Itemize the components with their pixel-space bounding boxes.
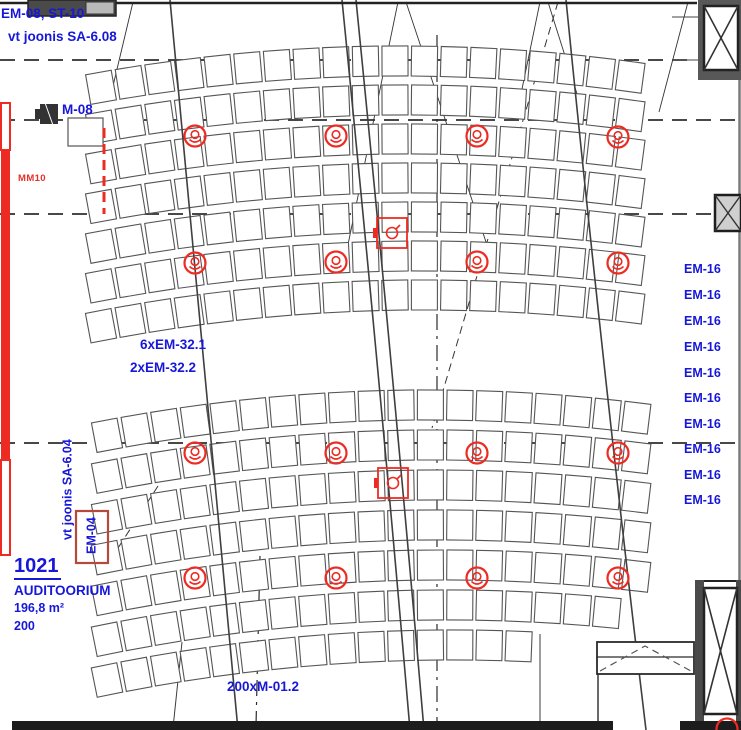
em16-label: EM-16 [684, 341, 721, 354]
em16-label: EM-16 [684, 494, 721, 507]
em16-label: EM-16 [684, 443, 721, 456]
mm10-label: MM10 [18, 174, 46, 184]
em16-label: EM-16 [684, 392, 721, 405]
floor-plan-view: EM-08, ST-10 vt joonis SA-6.08 M-08 MM10… [0, 0, 741, 730]
floor-plan-canvas [0, 0, 741, 730]
em16-label: EM-16 [684, 289, 721, 302]
em16-label: EM-16 [684, 263, 721, 276]
room-capacity: 200 [14, 620, 35, 633]
em04-label: EM-04 [85, 508, 98, 564]
em16-label: EM-16 [684, 469, 721, 482]
room-area: 196,8 m² [14, 602, 64, 615]
motor-symbol [35, 100, 58, 128]
em16-label: EM-16 [684, 315, 721, 328]
em32-label-2: 2xEM-32.2 [130, 361, 196, 375]
em32-label-1: 6xEM-32.1 [140, 338, 206, 352]
ref-label-em08-st10: EM-08, ST-10 [1, 7, 84, 21]
ref-label-sa604-vertical: vt joonis SA-6.04 [61, 423, 74, 557]
em16-label: EM-16 [684, 367, 721, 380]
bottom-cable-label: 200xM-01.2 [227, 680, 299, 694]
room-number: 1021 [14, 556, 61, 580]
em16-label: EM-16 [684, 418, 721, 431]
ref-label-sa608: vt joonis SA-6.08 [8, 30, 117, 44]
room-name: AUDITOORIUM [14, 584, 111, 598]
seat-block-lower [91, 390, 651, 697]
motor-label: M-08 [62, 103, 93, 117]
